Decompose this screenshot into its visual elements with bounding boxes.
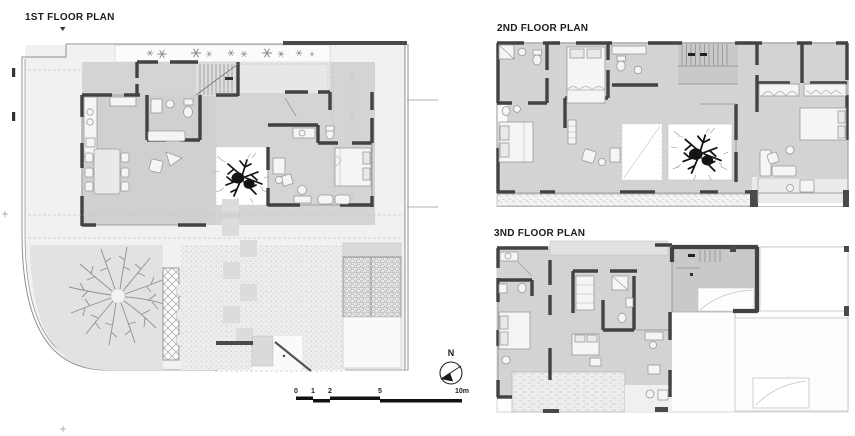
kitchen-counter xyxy=(84,97,97,157)
first-floor-title: 1ST FLOOR PLAN xyxy=(25,12,115,23)
north-compass: N xyxy=(440,348,462,384)
second-floor-voids xyxy=(622,124,732,180)
north-label: N xyxy=(448,348,455,358)
scale-tick-1: 1 xyxy=(311,388,315,395)
floor-plans-sheet: 1ST FLOOR PLAN xyxy=(0,0,855,436)
third-floor-plan: 3ND FLOOR PLAN xyxy=(494,228,849,413)
scale-tick-2: 2 xyxy=(328,388,332,395)
first-floor-plan: 1ST FLOOR PLAN xyxy=(2,12,438,432)
stair-floor xyxy=(678,42,738,84)
plans-drawing: 1ST FLOOR PLAN xyxy=(0,0,855,436)
courtyard xyxy=(214,147,269,205)
second-floor-plan: 2ND FLOOR PLAN xyxy=(497,23,849,207)
boundary-gate-mark xyxy=(12,68,15,77)
kitchen-sink-counter xyxy=(110,97,136,106)
bed-top-center xyxy=(567,47,605,103)
title-marker xyxy=(60,27,66,31)
scale-bar: 0 1 2 5 10m xyxy=(294,388,469,403)
scale-tick-0: 0 xyxy=(294,388,298,395)
scale-tick-10m: 10m xyxy=(455,388,469,395)
closet-center-3f xyxy=(576,276,594,310)
third-floor-title: 3ND FLOOR PLAN xyxy=(494,228,585,239)
gate-wall xyxy=(216,341,253,345)
driveway xyxy=(343,243,401,368)
balcony xyxy=(512,372,625,412)
second-floor-title: 2ND FLOOR PLAN xyxy=(497,23,588,34)
top-roof-line xyxy=(283,41,407,45)
bed-left-middle xyxy=(499,122,533,162)
dining-table xyxy=(85,149,129,194)
bed-right xyxy=(800,108,846,140)
scale-tick-5: 5 xyxy=(378,388,382,395)
master-bed xyxy=(335,148,371,186)
